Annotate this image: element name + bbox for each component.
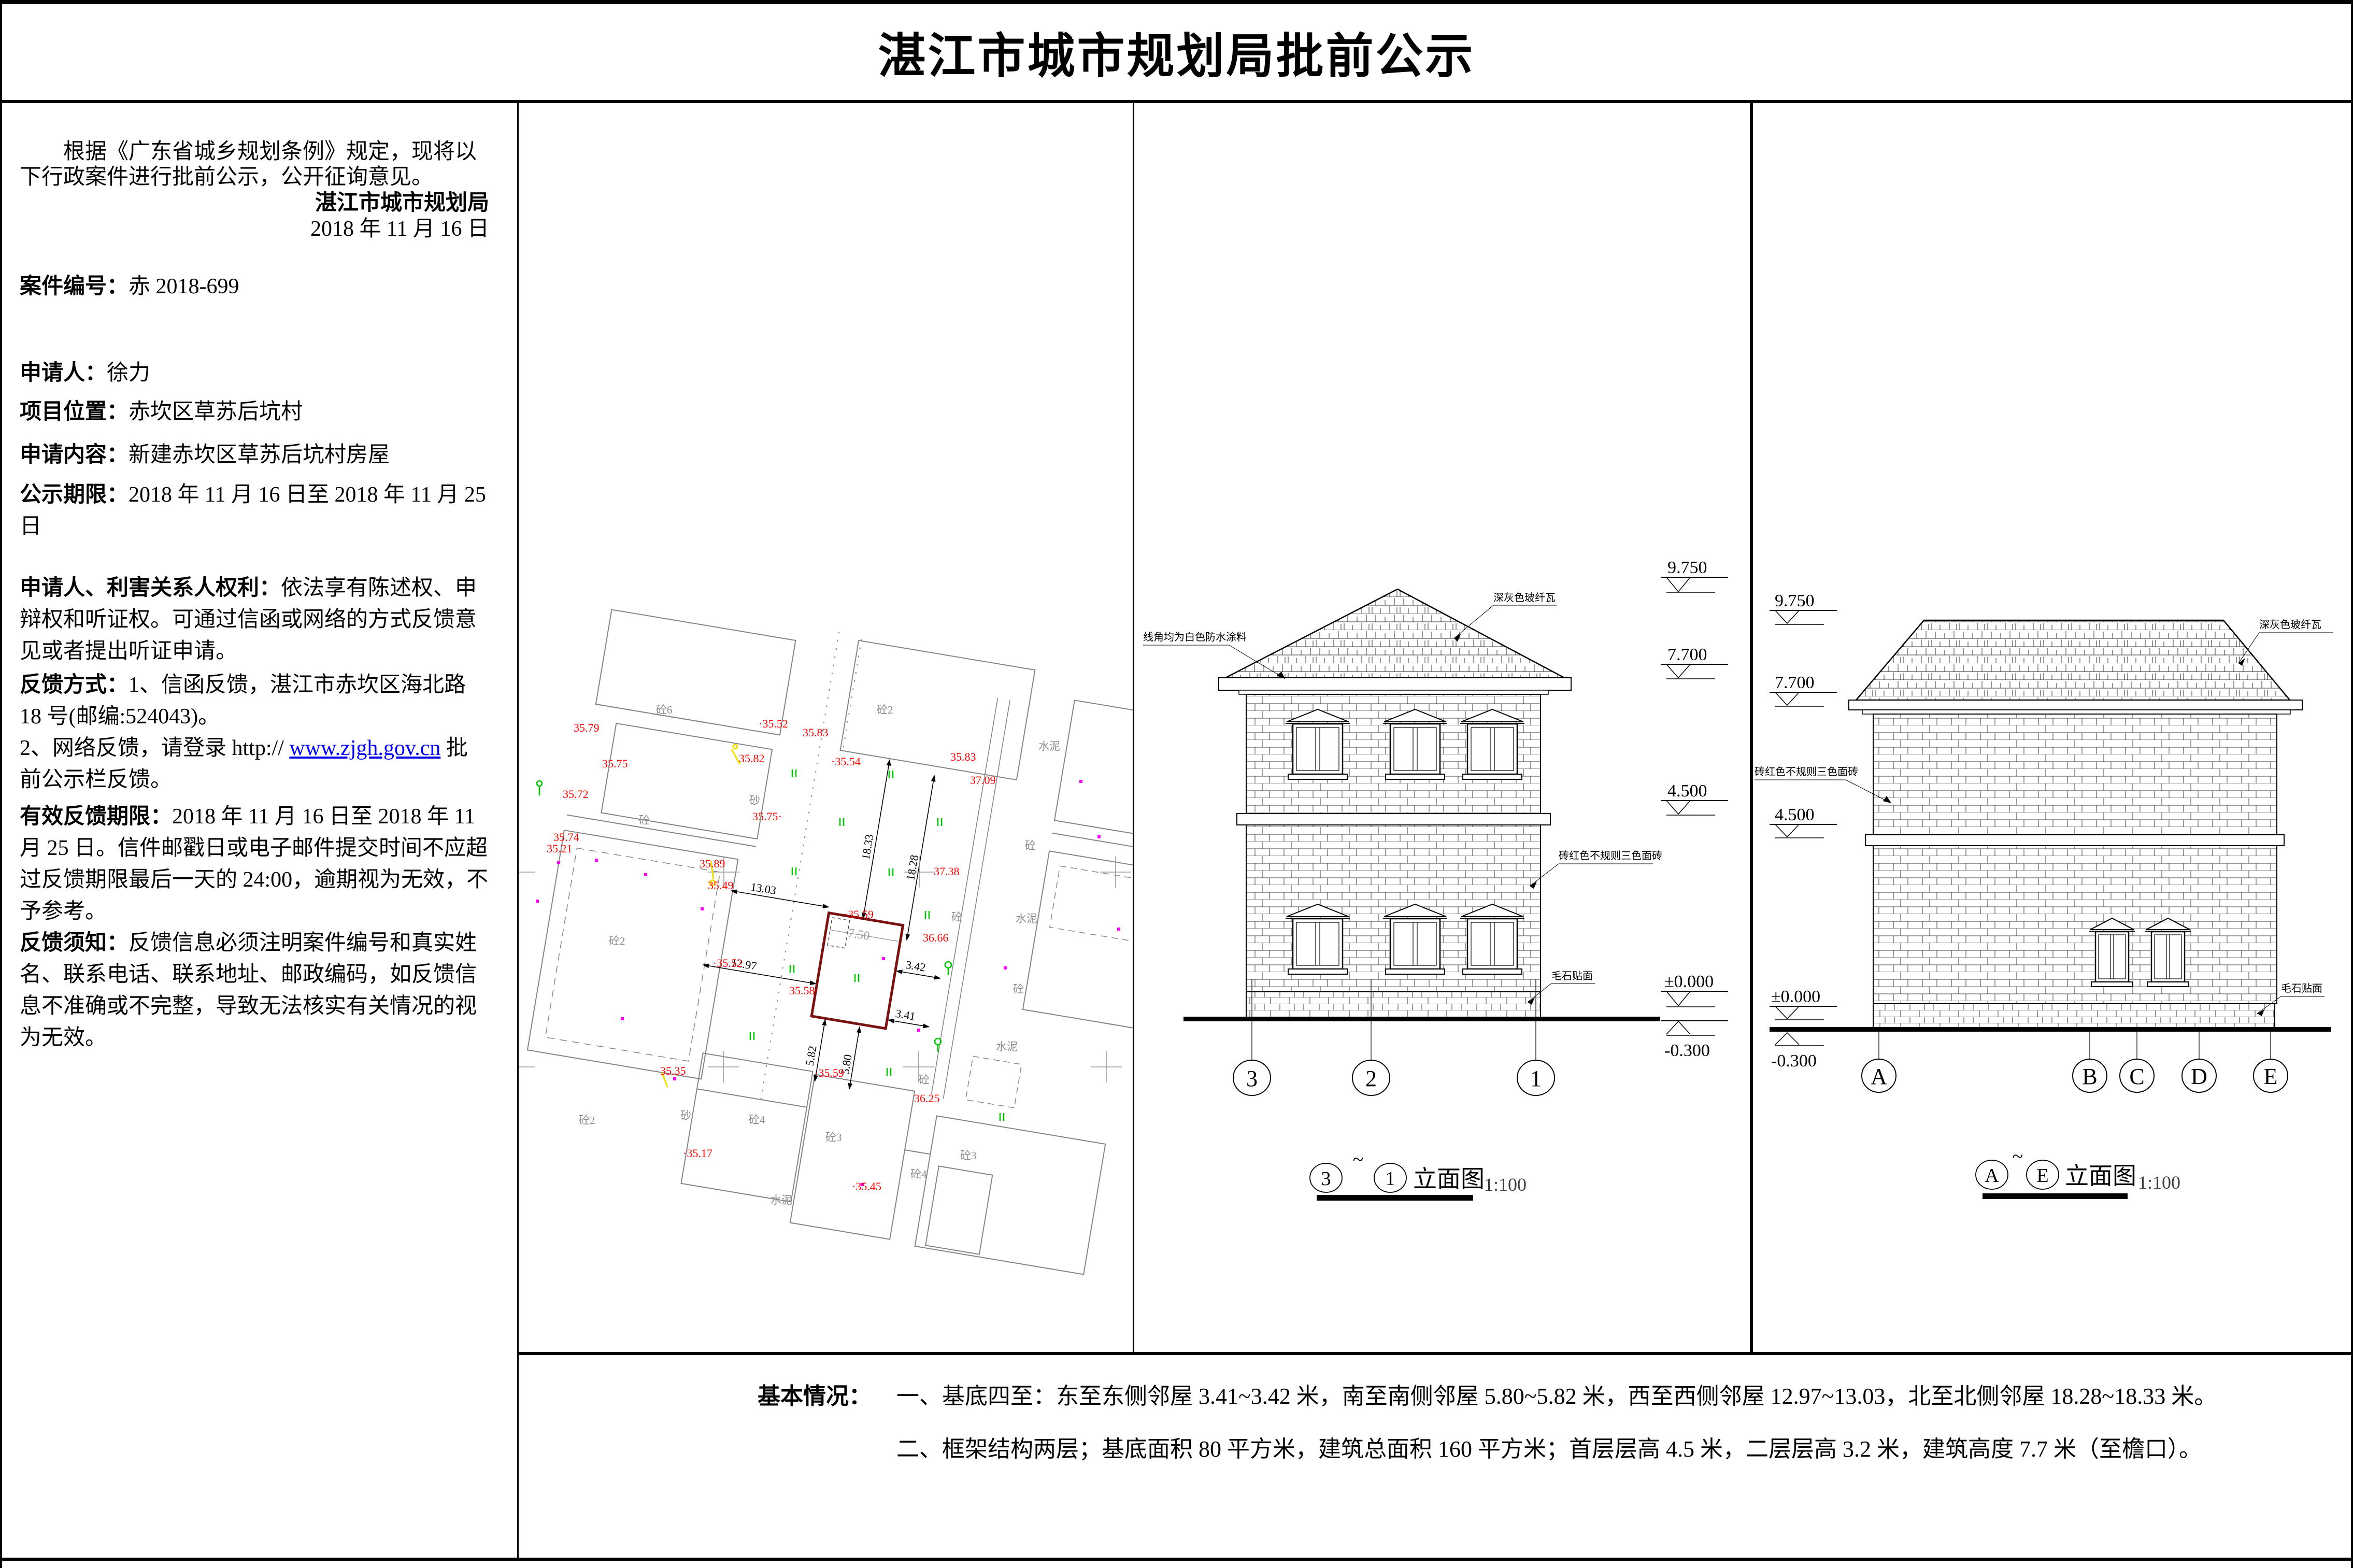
field-value: 2、网络反馈，请登录 http:// bbox=[20, 736, 289, 760]
svg-text:C: C bbox=[2129, 1064, 2144, 1089]
dim-south: 5.82 bbox=[803, 1045, 819, 1067]
field-value: 赤坎区草苏后坑村 bbox=[129, 400, 303, 424]
field-valid-period: 有效反馈期限：2018 年 11 月 16 日至 2018 年 11 月 25 … bbox=[20, 801, 489, 928]
drawing-caption: 3 ~ 1 立面图 1:100 bbox=[1310, 1149, 1527, 1201]
agency-signature: 湛江市城市规划局 bbox=[20, 190, 489, 216]
ground-line bbox=[1183, 1017, 1660, 1021]
field-publicity-period: 公示期限：2018 年 11 月 16 日至 2018 年 11 月 25 日 bbox=[20, 479, 489, 543]
svg-text:37.09: 37.09 bbox=[970, 774, 996, 787]
floor-band bbox=[1865, 835, 2284, 846]
svg-text:7.700: 7.700 bbox=[1775, 673, 1815, 692]
stone-base bbox=[1246, 992, 1541, 1018]
svg-text:3: 3 bbox=[1246, 1066, 1258, 1091]
svg-text:35.89: 35.89 bbox=[700, 857, 725, 870]
svg-text:砼6: 砼6 bbox=[656, 704, 673, 716]
eave-fascia bbox=[1219, 678, 1571, 690]
svg-text:35.79: 35.79 bbox=[574, 721, 600, 734]
field-label: 申请人、利害关系人权利： bbox=[20, 576, 281, 600]
svg-text:35.35: 35.35 bbox=[660, 1064, 686, 1077]
field-label: 反馈方式： bbox=[20, 673, 129, 697]
svg-text:砼4: 砼4 bbox=[749, 1114, 765, 1126]
svg-text:·35.59: ·35.59 bbox=[844, 908, 874, 921]
svg-text:35.72: 35.72 bbox=[563, 788, 589, 801]
field-case-number: 案件编号：赤 2018-699 bbox=[20, 271, 489, 303]
stone-base bbox=[1873, 1004, 2275, 1029]
field-rights: 申请人、利害关系人权利：依法享有陈述权、申辩权和听证权。可通过信函或网络的方式反… bbox=[20, 573, 489, 667]
field-label: 项目位置： bbox=[20, 400, 129, 424]
svg-text:砼: 砼 bbox=[639, 814, 650, 826]
svg-text:·35.17: ·35.17 bbox=[683, 1147, 712, 1160]
svg-text:9.750: 9.750 bbox=[1775, 591, 1815, 610]
basic-info-line1: 基本情况：一、基底四至：东至东侧邻屋 3.41~3.42 米，南至南侧邻屋 5.… bbox=[758, 1377, 2217, 1410]
svg-text:35.82: 35.82 bbox=[739, 752, 765, 765]
svg-text:1:100: 1:100 bbox=[2138, 1172, 2180, 1193]
building-side-elevation bbox=[1770, 620, 2331, 1032]
field-label: 申请人： bbox=[20, 361, 107, 385]
svg-text:B: B bbox=[2082, 1064, 2097, 1089]
svg-text:·35.59: ·35.59 bbox=[815, 1066, 844, 1079]
svg-text:·35.45: ·35.45 bbox=[852, 1180, 881, 1193]
svg-text:D: D bbox=[2191, 1064, 2207, 1089]
field-feedback-notes: 反馈须知：反馈信息必须注明案件编号和真实姓名、联系电话、联系地址、邮政编码，如反… bbox=[20, 928, 489, 1054]
eave-paint-note: 线角均为白色防水涂料 bbox=[1143, 631, 1247, 643]
wall-tile-note: 砖红色不规则三色面砖 bbox=[1755, 766, 1858, 778]
svg-text:砼: 砼 bbox=[1013, 983, 1024, 995]
field-value: 徐力 bbox=[107, 361, 150, 385]
basic-info-label: 基本情况： bbox=[758, 1384, 872, 1409]
svg-text:E: E bbox=[2036, 1165, 2048, 1187]
svg-text:水泥: 水泥 bbox=[1038, 740, 1060, 752]
svg-text:水泥: 水泥 bbox=[1016, 913, 1037, 925]
field-label: 申请内容： bbox=[20, 443, 129, 467]
basic-info-item2: 二、框架结构两层；基底面积 80 平方米，建筑总面积 160 平方米；首层层高 … bbox=[896, 1436, 2202, 1462]
svg-text:·35.52: ·35.52 bbox=[759, 717, 788, 730]
wall-2f bbox=[1873, 714, 2277, 835]
svg-text:35.58·: 35.58· bbox=[789, 984, 819, 997]
svg-text:9.750: 9.750 bbox=[1667, 558, 1707, 577]
svg-text:±0.000: ±0.000 bbox=[1771, 987, 1820, 1006]
field-applicant: 申请人：徐力 bbox=[20, 358, 489, 389]
elevation-a-e-drawing: 9.750 7.700 4.500 ±0.000 -0.300 深灰色玻纤瓦 bbox=[1753, 103, 2351, 1353]
basic-info-section: 基本情况：一、基底四至：东至东侧邻屋 3.41~3.42 米，南至南侧邻屋 5.… bbox=[519, 1355, 2351, 1558]
page-title: 湛江市城市规划局批前公示 bbox=[878, 18, 1475, 87]
notice-date: 2018 年 11 月 16 日 bbox=[20, 216, 489, 242]
wall-1f bbox=[1873, 846, 2277, 1004]
field-label: 反馈须知： bbox=[20, 931, 129, 955]
svg-text:35.49: 35.49 bbox=[708, 879, 734, 892]
dimension-lines bbox=[687, 735, 974, 1101]
svg-text:砂: 砂 bbox=[749, 794, 760, 807]
title-row: 湛江市城市规划局批前公示 bbox=[0, 4, 2353, 100]
border-left bbox=[0, 0, 2, 1568]
field-label: 有效反馈期限： bbox=[20, 805, 172, 829]
stone-facing-note: 毛石贴面 bbox=[1551, 970, 1593, 982]
basic-info-item1: 一、基底四至：东至东侧邻屋 3.41~3.42 米，南至南侧邻屋 5.80~5.… bbox=[896, 1384, 2217, 1409]
dim-north-2: 18.28 bbox=[904, 854, 921, 881]
svg-text:1: 1 bbox=[1386, 1168, 1395, 1190]
svg-text:-0.300: -0.300 bbox=[1664, 1041, 1710, 1060]
field-content: 申请内容：新建赤坎区草苏后坑村房屋 bbox=[20, 439, 489, 471]
dim-building-width: 7.50 bbox=[847, 926, 871, 944]
spot-elevations: 35.79 ·35.52 35.83 35.75 35.82 35.83 37.… bbox=[547, 717, 996, 1193]
svg-text:4.500: 4.500 bbox=[1667, 781, 1707, 801]
field-location: 项目位置：赤坎区草苏后坑村 bbox=[20, 396, 489, 428]
svg-text:35.75·: 35.75· bbox=[752, 810, 782, 823]
level-markers: 9.750 7.700 4.500 ±0.000 -0.300 bbox=[1661, 558, 1728, 1060]
svg-text:-0.300: -0.300 bbox=[1771, 1051, 1817, 1071]
roof bbox=[1856, 620, 2290, 700]
svg-text:35.75: 35.75 bbox=[602, 757, 628, 770]
ground-line bbox=[1770, 1027, 2331, 1032]
field-label: 案件编号： bbox=[20, 275, 129, 298]
svg-text:E: E bbox=[2264, 1064, 2278, 1089]
svg-text:立面图: 立面图 bbox=[1413, 1166, 1485, 1192]
svg-text:砼: 砼 bbox=[919, 1074, 930, 1086]
svg-text:A: A bbox=[1985, 1165, 1999, 1187]
border-top bbox=[0, 0, 2353, 4]
svg-text:1:100: 1:100 bbox=[1484, 1174, 1527, 1195]
basic-info-line2: 二、框架结构两层；基底面积 80 平方米，建筑总面积 160 平方米；首层层高 … bbox=[896, 1430, 2202, 1463]
notice-text-panel: 根据《广东省城乡规划条例》规定，现将以下行政案件进行批前公示，公开征询意见。 湛… bbox=[3, 103, 503, 1554]
svg-text:~: ~ bbox=[1353, 1149, 1364, 1171]
intro-paragraph: 根据《广东省城乡规划条例》规定，现将以下行政案件进行批前公示，公开征询意见。 bbox=[20, 139, 489, 190]
floor-band bbox=[1237, 814, 1550, 825]
field-value: 新建赤坎区草苏后坑村房屋 bbox=[129, 443, 390, 467]
svg-text:3: 3 bbox=[1321, 1168, 1331, 1190]
svg-text:35.21: 35.21 bbox=[547, 842, 573, 855]
building-front-elevation bbox=[1183, 589, 1660, 1021]
svg-text:35.83: 35.83 bbox=[803, 726, 829, 739]
svg-text:水泥: 水泥 bbox=[996, 1040, 1018, 1053]
level-markers: 9.750 7.700 4.500 ±0.000 -0.300 bbox=[1770, 591, 1837, 1071]
svg-text:砼2: 砼2 bbox=[609, 935, 625, 947]
svg-text:·35.54: ·35.54 bbox=[831, 755, 861, 768]
svg-text:4.500: 4.500 bbox=[1775, 805, 1815, 824]
eave-fascia bbox=[1849, 700, 2302, 710]
svg-text:砼: 砼 bbox=[951, 911, 962, 923]
roof-material-note: 深灰色玻纤瓦 bbox=[1493, 592, 1556, 604]
notice-sheet: 湛江市城市规划局批前公示 根据《广东省城乡规划条例》规定，现将以下行政案件进行批… bbox=[0, 0, 2353, 1568]
site-plan-drawing: 18.33 18.28 13.03 12.97 7.50 3.42 3.41 5… bbox=[519, 103, 1133, 1353]
svg-text:A: A bbox=[1871, 1064, 1887, 1089]
svg-text:36.66: 36.66 bbox=[923, 931, 949, 944]
svg-text:·35.52: ·35.52 bbox=[713, 957, 743, 970]
svg-text:砼4: 砼4 bbox=[910, 1168, 927, 1180]
svg-text:砼2: 砼2 bbox=[579, 1114, 595, 1127]
svg-text:砼2: 砼2 bbox=[877, 704, 893, 716]
divider-left-panel bbox=[517, 103, 519, 1559]
svg-text:水泥: 水泥 bbox=[771, 1194, 792, 1206]
svg-text:37.38: 37.38 bbox=[934, 865, 960, 878]
svg-text:±0.000: ±0.000 bbox=[1664, 972, 1714, 991]
svg-text:砼3: 砼3 bbox=[960, 1149, 977, 1162]
field-feedback-online: 2、网络反馈，请登录 http:// www.zjgh.gov.cn 批前公示栏… bbox=[20, 733, 489, 796]
field-value: 赤 2018-699 bbox=[129, 275, 239, 298]
dim-east-2: 3.41 bbox=[894, 1007, 916, 1023]
grid-bubbles: A B C D E bbox=[1862, 1032, 2288, 1092]
svg-text:砼: 砼 bbox=[1025, 839, 1036, 852]
dim-east: 3.42 bbox=[905, 958, 926, 974]
field-feedback-method: 反馈方式：1、信函反馈，湛江市赤坎区海北路 18 号(邮编:524043)。 bbox=[20, 669, 489, 733]
border-bottom bbox=[0, 1558, 2353, 1561]
svg-text:立面图: 立面图 bbox=[2065, 1163, 2136, 1189]
svg-text:1: 1 bbox=[1530, 1066, 1542, 1091]
field-label: 公示期限： bbox=[20, 483, 129, 507]
roof-material-note: 深灰色玻纤瓦 bbox=[2259, 619, 2321, 631]
drawing-caption: A ~ E 立面图 1:100 bbox=[1976, 1146, 2180, 1199]
svg-text:36.25: 36.25 bbox=[914, 1092, 940, 1105]
wall-tile-note: 砖红色不规则三色面砖 bbox=[1559, 850, 1662, 862]
stone-facing-note: 毛石贴面 bbox=[2281, 982, 2322, 994]
elevation-3-1-drawing: 9.750 7.700 4.500 ±0.000 -0.300 深灰色玻纤瓦 bbox=[1134, 103, 1750, 1353]
svg-text:~: ~ bbox=[2013, 1146, 2023, 1167]
svg-text:砼3: 砼3 bbox=[825, 1131, 842, 1144]
svg-text:7.700: 7.700 bbox=[1667, 645, 1707, 664]
svg-text:砂: 砂 bbox=[680, 1109, 691, 1122]
zjgh-website-link[interactable]: www.zjgh.gov.cn bbox=[289, 736, 440, 760]
svg-text:2: 2 bbox=[1365, 1066, 1377, 1091]
svg-text:35.83: 35.83 bbox=[950, 750, 976, 763]
